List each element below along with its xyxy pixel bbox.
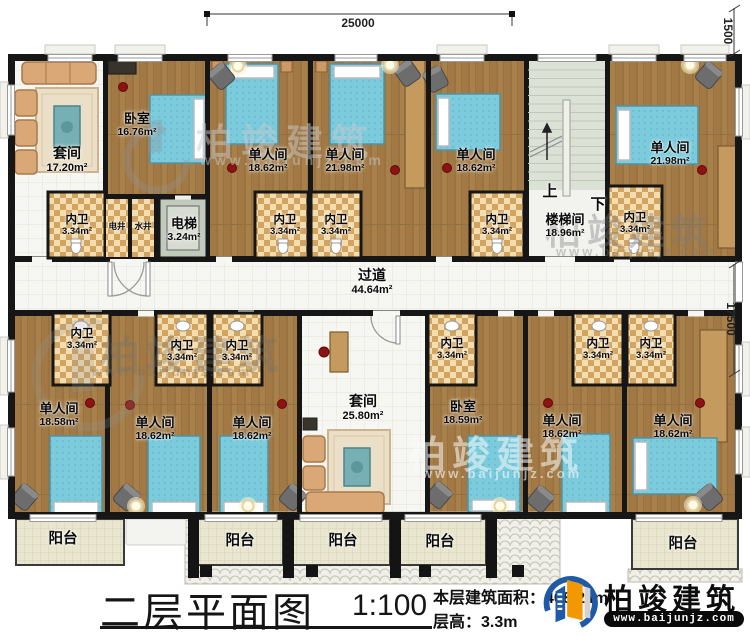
armchair (15, 90, 37, 116)
bed (436, 94, 500, 150)
title-underline (100, 626, 432, 629)
balcony-5 (632, 519, 738, 569)
balcony-1 (16, 519, 124, 565)
wardrobe (700, 330, 727, 442)
armchair (303, 466, 325, 490)
cabinet (108, 61, 136, 74)
floor-height-value: 3.3m (481, 614, 517, 631)
cabinet (303, 418, 317, 430)
sink-icon (230, 321, 244, 331)
floor-plan-drawing (0, 0, 750, 636)
toilet-icon (331, 239, 341, 254)
armchair (15, 120, 37, 146)
sofa (22, 62, 96, 84)
desk (330, 332, 348, 372)
sink-icon (592, 321, 606, 331)
armchair (15, 150, 37, 174)
brand-website: www.baijunjz.com (604, 611, 744, 627)
toilet-icon (278, 239, 288, 254)
floor-plan-page: 柏竣建筑 www.baijunjz.com 柏竣建筑 www.baijunjz.… (0, 0, 750, 636)
elevator-box (159, 196, 207, 259)
floor-area-label: 本层建筑面积： (433, 590, 545, 607)
floor-height-label: 层高： (433, 614, 481, 631)
water-shaft (131, 198, 155, 258)
door-leaf (396, 316, 400, 344)
electric-shaft (105, 198, 129, 258)
floor-height-line: 层高：3.3m (433, 608, 517, 632)
armchair (303, 436, 325, 462)
brand-logo-icon (542, 572, 600, 630)
door-leaf (146, 262, 150, 296)
sofa (306, 492, 384, 514)
toilet-icon (492, 239, 502, 254)
toilet-icon (629, 239, 639, 254)
bed (148, 436, 200, 514)
bed (50, 436, 102, 514)
sink-icon (176, 321, 190, 331)
stair-rail (563, 100, 570, 196)
shafts (105, 198, 155, 258)
drawing-scale: 1:100 (352, 589, 427, 623)
corridor-floor (13, 259, 740, 313)
toilet-icon (71, 239, 81, 254)
bed (562, 434, 610, 514)
door-leaf (108, 262, 112, 296)
balconies (16, 519, 738, 569)
bed (330, 64, 384, 144)
sink-icon (445, 321, 459, 331)
lamp-icon (684, 496, 702, 514)
sink-icon (644, 321, 658, 331)
balcony-2 (198, 519, 283, 565)
wardrobe (718, 146, 737, 248)
balcony-4 (400, 519, 486, 565)
bed (633, 438, 717, 494)
balcony-3 (293, 519, 390, 565)
bed (616, 106, 698, 164)
